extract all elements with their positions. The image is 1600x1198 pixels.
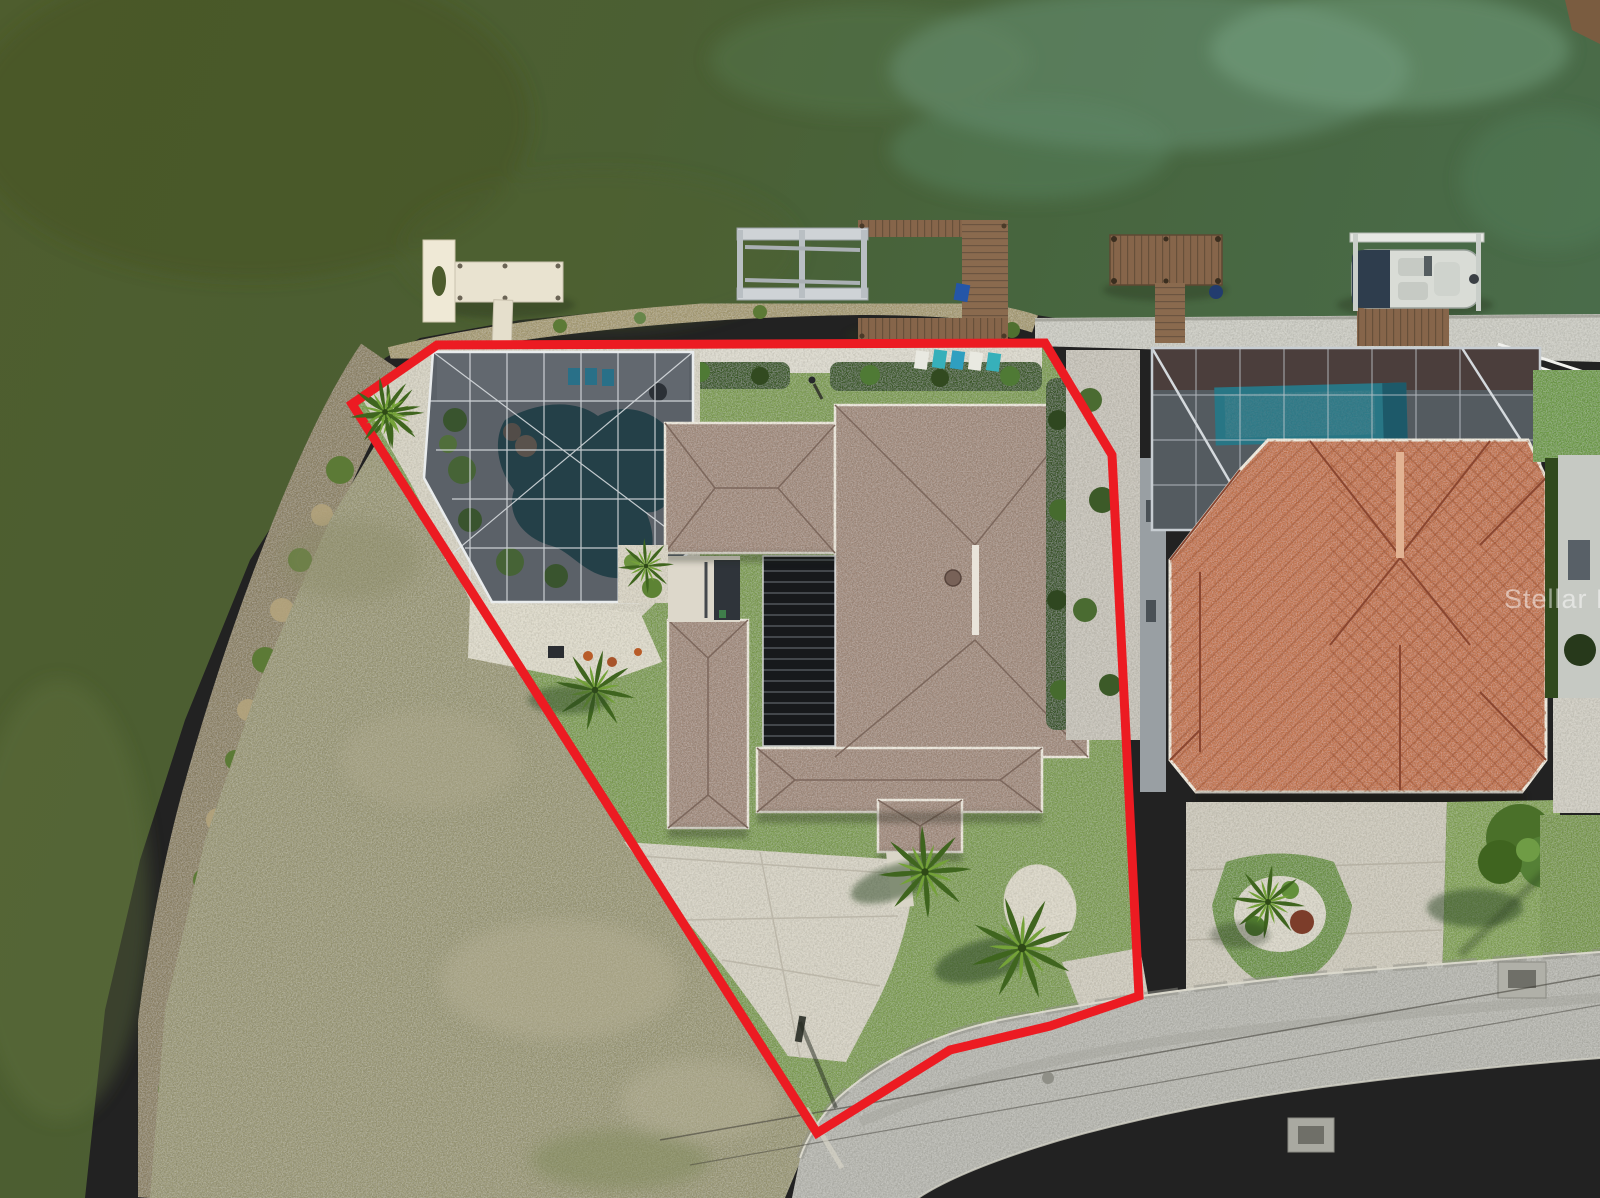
- solar-panel-array: [763, 556, 835, 746]
- entry-courtyard: [668, 556, 740, 622]
- mls-watermark: Stellar MLS: [1504, 584, 1600, 614]
- aerial-photo-stage: Stellar MLS: [0, 0, 1600, 1198]
- grill: [548, 646, 564, 658]
- roof-vent: [945, 570, 961, 586]
- ridge-cap: [1396, 452, 1404, 558]
- subject-roof-faces: [665, 405, 1088, 852]
- dock-bin: [1209, 285, 1223, 299]
- subject-house: [665, 405, 1088, 862]
- ridge-vent: [972, 545, 979, 635]
- neighbor-house: [1170, 440, 1546, 804]
- aerial-photo: Stellar MLS: [0, 0, 1600, 1198]
- blue-kayak: [954, 283, 971, 302]
